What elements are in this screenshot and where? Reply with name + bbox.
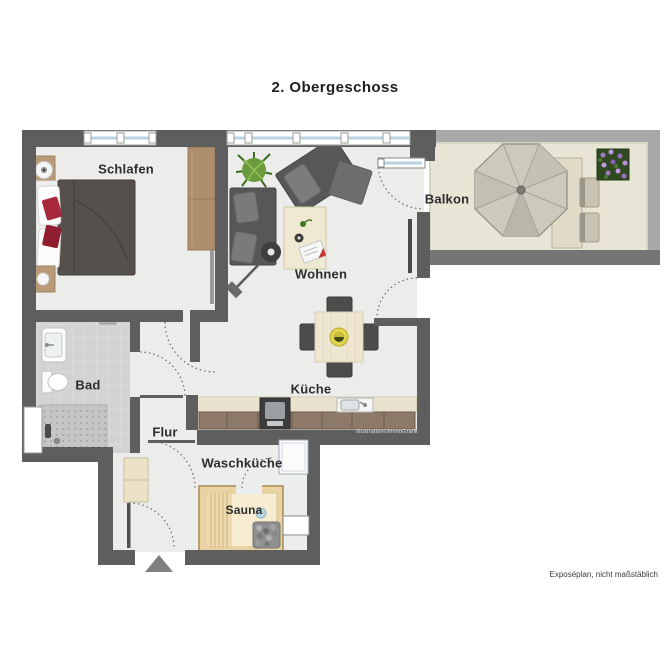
tv-sideboard <box>408 219 412 273</box>
sauna-door-opening <box>236 485 262 494</box>
washing-machine <box>279 440 308 474</box>
balcony-chair <box>580 213 599 242</box>
nightstand-bottom <box>33 266 55 292</box>
hall-cabinet <box>124 458 148 502</box>
kitchen-counter <box>197 397 417 429</box>
balcony-chair <box>580 178 599 207</box>
room-label-waschkueche: Waschküche <box>202 456 283 471</box>
room-label-flur: Flur <box>152 425 177 440</box>
entrance-door-leaf <box>127 503 131 548</box>
sauna-heater <box>253 522 280 548</box>
sliding-door <box>210 250 214 304</box>
window-wohnen <box>227 131 410 145</box>
french-window-opening <box>417 278 430 318</box>
stove <box>260 398 290 429</box>
balcony-bottom-wall <box>427 250 660 265</box>
window-schlafen <box>84 131 156 145</box>
room-label-sauna: Sauna <box>225 503 262 517</box>
illustrator-watermark: Illustration©immoGrafik <box>352 429 418 435</box>
double-bed <box>36 180 135 275</box>
washbasin <box>42 328 66 362</box>
coffee-table <box>284 207 326 269</box>
room-label-wohnen: Wohnen <box>295 267 347 282</box>
sink <box>337 398 373 412</box>
chair <box>327 361 352 377</box>
room-label-kueche: Küche <box>291 382 332 397</box>
scale-note: Exposéplan, nicht maßstäblich <box>550 570 659 579</box>
window-bad <box>24 407 42 453</box>
wardrobe <box>188 147 215 250</box>
room-label-bad: Bad <box>75 378 100 393</box>
floorplan-page: 2. Obergeschoss Schlafen Wohnen Balkon B… <box>0 0 670 670</box>
nightstand-top <box>33 156 55 184</box>
chair <box>327 297 352 313</box>
sauna <box>199 485 283 553</box>
parasol <box>475 144 567 236</box>
niche <box>283 516 309 535</box>
room-label-schlafen: Schlafen <box>98 162 154 177</box>
room-label-balkon: Balkon <box>425 192 470 207</box>
flower-box <box>597 149 629 180</box>
chair <box>300 324 316 350</box>
page-title: 2. Obergeschoss <box>0 79 670 96</box>
entrance-arrow-icon <box>145 555 173 572</box>
chair <box>362 324 378 350</box>
